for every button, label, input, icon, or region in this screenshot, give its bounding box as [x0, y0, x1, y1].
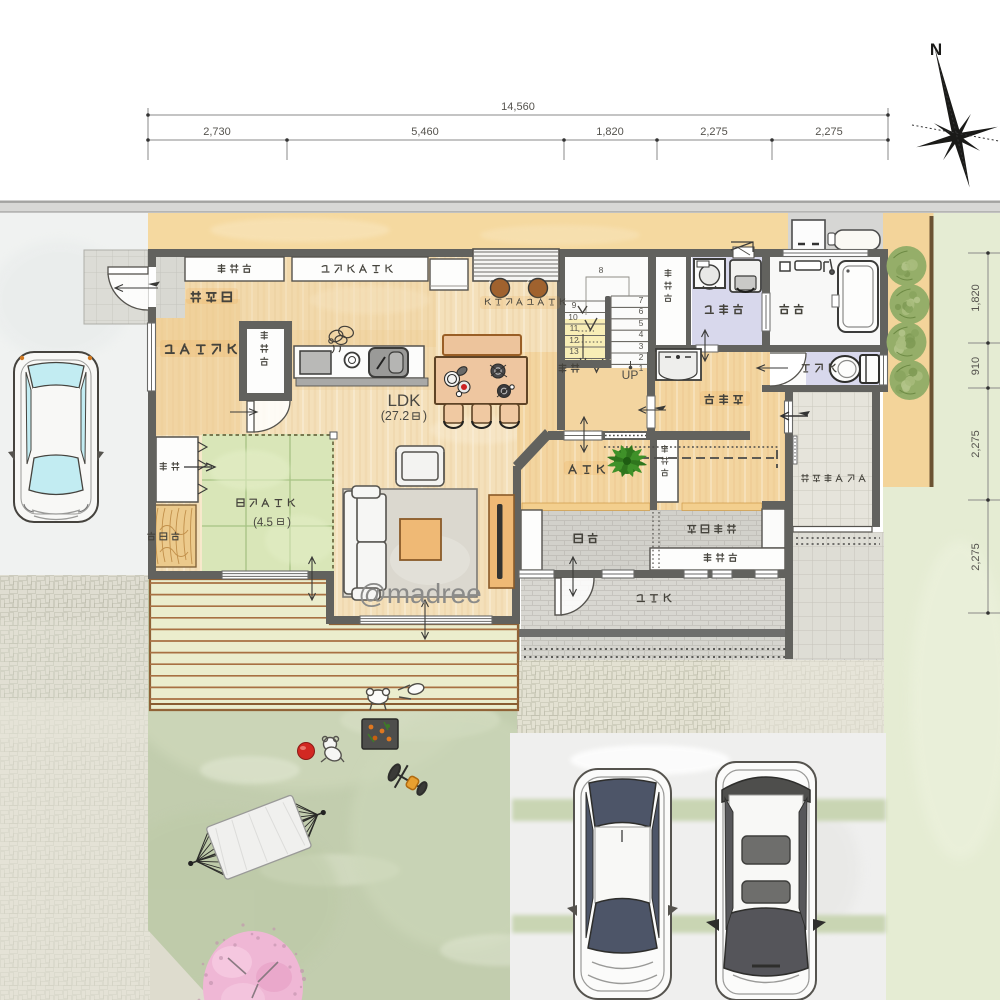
svg-text:2,730: 2,730 — [203, 126, 231, 138]
svg-text:9: 9 — [572, 300, 577, 310]
svg-text:2,275: 2,275 — [815, 126, 843, 138]
svg-text:3: 3 — [639, 341, 644, 351]
svg-text:N: N — [930, 40, 942, 59]
svg-text:(4.5: (4.5 — [253, 517, 273, 529]
svg-text:(27.2: (27.2 — [381, 409, 410, 423]
svg-text:2,275: 2,275 — [970, 430, 982, 458]
svg-text:5: 5 — [639, 318, 644, 328]
svg-text:4: 4 — [639, 329, 644, 339]
svg-text:): ) — [287, 517, 291, 529]
svg-text:11: 11 — [570, 323, 579, 333]
svg-text:13: 13 — [569, 346, 579, 356]
svg-text:2: 2 — [639, 352, 644, 362]
svg-text:910: 910 — [970, 357, 982, 375]
svg-text:2,275: 2,275 — [700, 126, 728, 138]
svg-text:1,820: 1,820 — [596, 126, 624, 138]
svg-text:): ) — [423, 409, 427, 423]
svg-text:8: 8 — [599, 265, 604, 275]
svg-text:7: 7 — [639, 295, 644, 305]
svg-text:2,275: 2,275 — [970, 543, 982, 571]
svg-text:UP: UP — [622, 368, 639, 382]
svg-text:14,560: 14,560 — [501, 101, 535, 113]
svg-text:5,460: 5,460 — [411, 126, 439, 138]
svg-text:12: 12 — [569, 335, 579, 345]
svg-text:6: 6 — [639, 306, 644, 316]
svg-text:LDK: LDK — [387, 391, 421, 410]
svg-text:10: 10 — [568, 312, 578, 322]
svg-text:1,820: 1,820 — [970, 284, 982, 312]
svg-text:1: 1 — [639, 363, 644, 373]
svg-text:@madree: @madree — [358, 578, 481, 609]
